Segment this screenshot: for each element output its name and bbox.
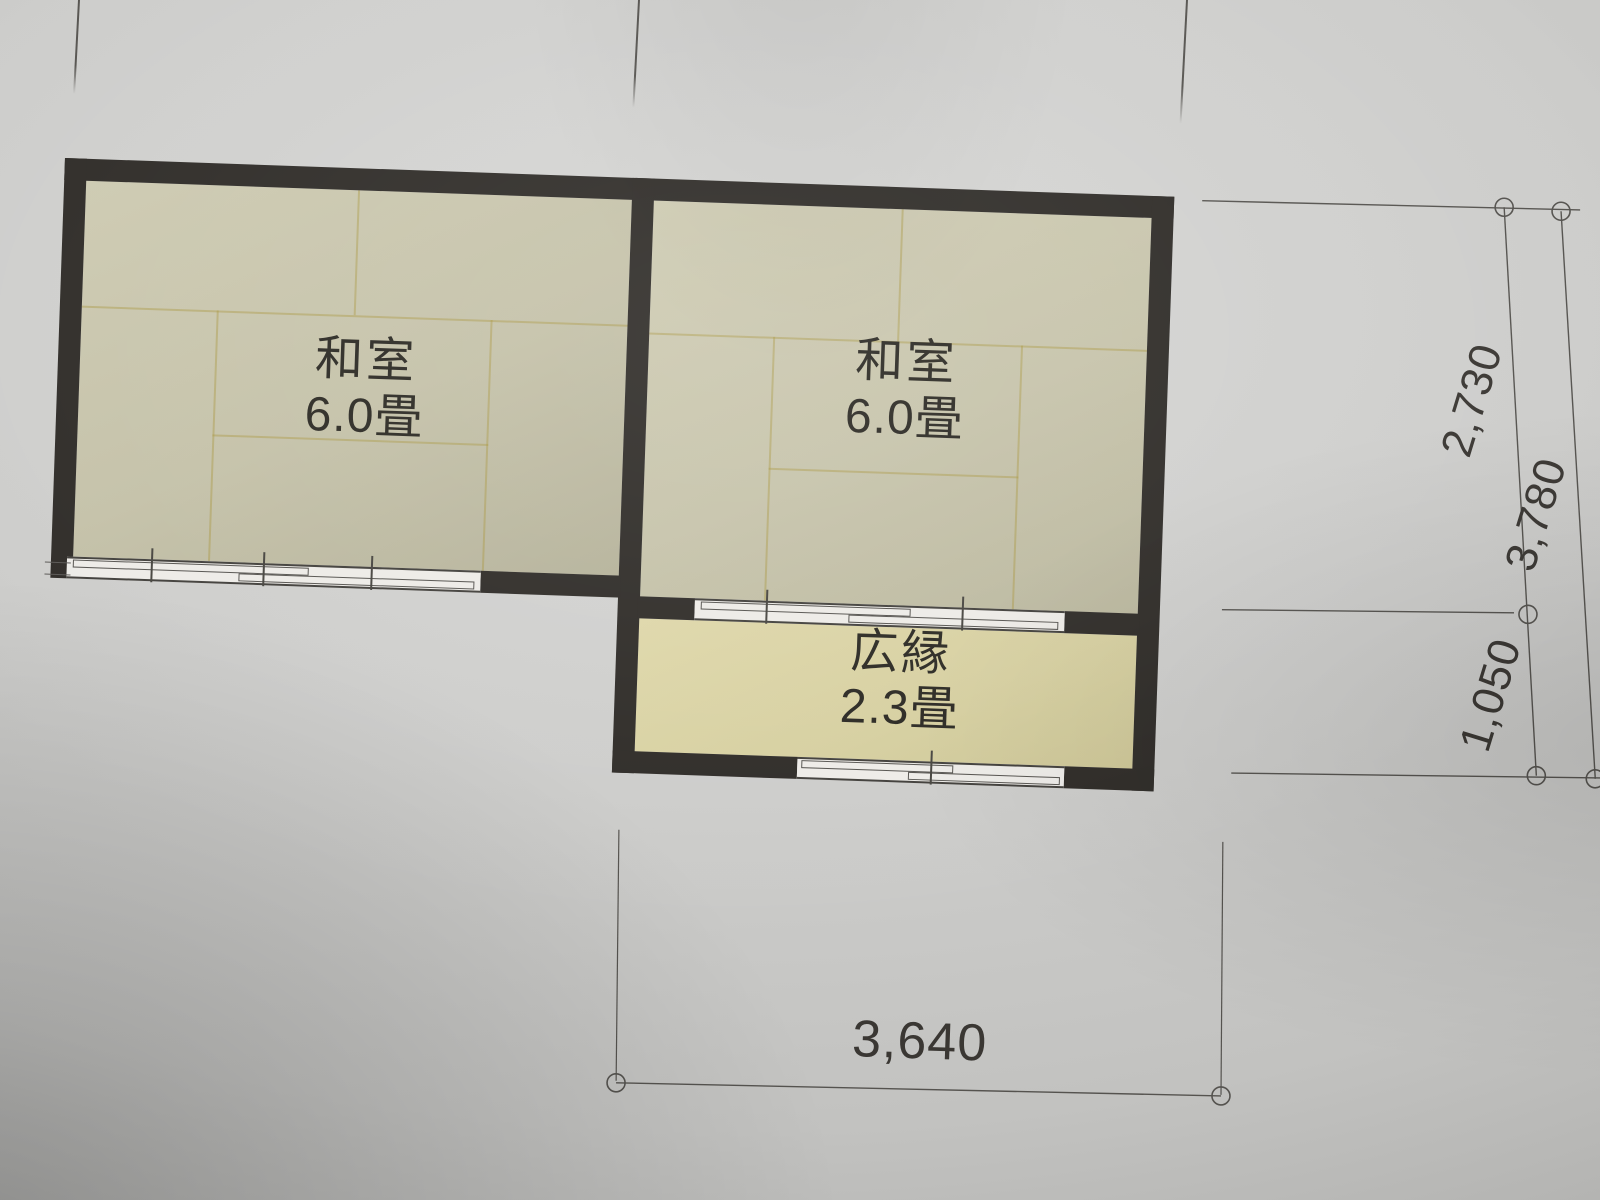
top-extension-line-left (73, 0, 80, 94)
dimension-lines (31, 158, 1600, 1172)
extension-line-bottom-left (610, 830, 625, 1081)
floor-plan-drawing: 和室 6.0畳 和室 6.0畳 広縁 2.3畳 (31, 158, 1600, 1172)
extension-line-top (1202, 197, 1580, 214)
dimension-line-bottom (616, 1075, 1221, 1104)
extension-line-bottom-right (1214, 842, 1230, 1095)
dimension-label-bottom-width: 3,640 (851, 1009, 988, 1074)
floor-plan-photo: 和室 6.0畳 和室 6.0畳 広縁 2.3畳 (0, 0, 1600, 1200)
top-extension-line-center (632, 0, 640, 108)
extension-line-middle (1222, 603, 1514, 620)
dimension-endpoint (1586, 769, 1600, 788)
top-extension-line-right (1180, 0, 1188, 124)
